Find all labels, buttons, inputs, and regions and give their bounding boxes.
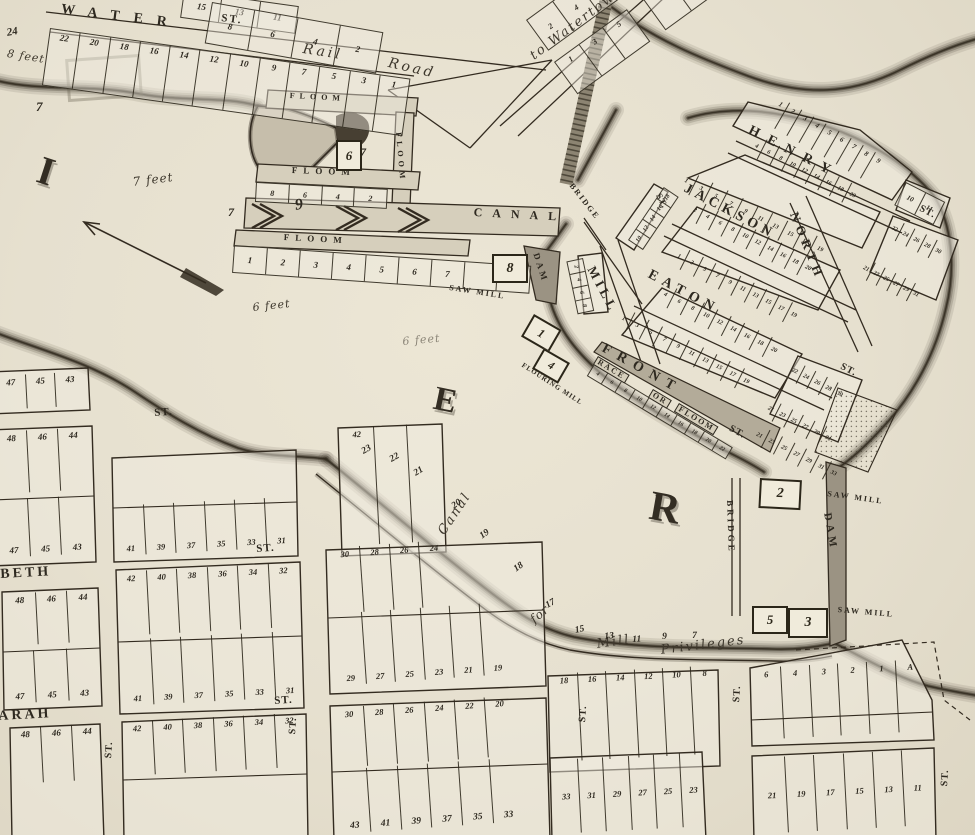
lot-number: 13: [872, 750, 905, 827]
lot-number: 42: [122, 720, 154, 775]
lot-number: 14: [605, 670, 638, 759]
lot-number: 37: [173, 501, 206, 553]
bridge-east: BRIDGE: [725, 500, 736, 554]
lot-number: 3: [298, 251, 333, 279]
lot-row-col4-2: 333129272523: [552, 752, 708, 834]
depth-6-feet-b: 6 feet: [402, 333, 441, 347]
lot-number: 43: [54, 371, 85, 407]
lot-number: 48: [0, 430, 29, 493]
lot-number: 28: [363, 704, 397, 766]
lot-number: 31: [576, 757, 605, 832]
lot-number: 39: [143, 503, 176, 555]
lot-number: 44: [71, 723, 105, 781]
lot-number: 1: [866, 661, 899, 734]
elizabeth-st: BETH: [0, 565, 52, 582]
lot-number: 8: [256, 183, 289, 203]
lot-number: 33: [489, 757, 524, 823]
lot-number: 43: [58, 495, 93, 555]
lot-number: 10: [662, 667, 695, 756]
lot-row-west-col-1: 474543: [0, 371, 86, 410]
lot-number: 41: [114, 504, 146, 555]
lot-number: 40: [151, 719, 184, 775]
lot-number: 11: [901, 749, 934, 826]
lot-number: 6: [247, 10, 297, 57]
canal-lot-11: 11: [632, 635, 641, 645]
lot-number: 41: [366, 766, 401, 832]
lot-number: 8: [206, 3, 255, 50]
lot-row-col5-1: 64321A: [752, 659, 928, 740]
lot-number: 37: [180, 635, 214, 703]
lot-number: 6: [288, 185, 322, 205]
lot-number: 44: [66, 589, 100, 643]
lot-number: 1: [233, 246, 267, 274]
lot-number: 30: [330, 546, 363, 614]
depth-7-a: 7: [36, 100, 43, 113]
lot-number: 26: [393, 702, 427, 764]
lot-number: 40: [145, 569, 179, 635]
lot-number: 33: [241, 632, 275, 700]
lot-number: 2: [353, 188, 387, 208]
lot-number: 44: [57, 427, 91, 491]
saw-mill-lot-5: 5: [752, 606, 788, 634]
lot-row-col2-4: 424038363432: [122, 712, 307, 775]
lot-number: 8: [690, 665, 723, 754]
lot-number: 43: [336, 768, 370, 834]
lot-number: 20: [483, 695, 517, 757]
lot-number: 47: [2, 650, 36, 704]
lot-row-col3-4: 302826242220: [334, 695, 518, 767]
lot-number: 47: [0, 374, 26, 409]
lot-number: 35: [458, 759, 493, 825]
lot-row-col3-5: 434139373533: [336, 757, 524, 834]
lot-number: 30: [334, 706, 367, 768]
lot-number: 34: [243, 714, 276, 770]
lot-number: 29: [602, 756, 631, 831]
lot-number: 25: [653, 753, 682, 828]
lot-number: 46: [35, 591, 69, 645]
lot-number: 36: [212, 716, 245, 772]
lot-number: 22: [453, 698, 487, 760]
canal-lot-7: 7: [692, 631, 697, 641]
lot-number: 12: [633, 668, 666, 757]
lot-number: 19: [784, 755, 817, 832]
lot-number: 46: [40, 725, 74, 783]
lot-number: 26: [388, 542, 422, 610]
lot-row-col3-1: 42: [340, 423, 446, 546]
lot-number: A: [895, 659, 928, 732]
lot-number: 36: [206, 566, 240, 632]
saw-mill-lot-3: 3: [788, 608, 828, 638]
floom-lot-6: 6: [336, 140, 362, 171]
lot-number: 1: [372, 75, 410, 135]
plat-map: WATERST.24RailRoadto WatertownFLOOMFLOOM…: [0, 0, 975, 835]
lot-row-west-col-5: 474543: [2, 647, 101, 704]
lot-number: 17: [813, 753, 846, 830]
lot-row-west-col-4: 484644: [4, 589, 101, 646]
lot-number: 47: [0, 498, 30, 558]
lot-number: 37: [427, 761, 462, 827]
canal-lot-15: 15: [574, 624, 585, 636]
lot-number: 23: [678, 752, 707, 827]
lot-number: 4: [320, 186, 354, 206]
st-west-1: ST.: [154, 407, 173, 419]
lot-number: 2: [837, 662, 870, 735]
lot-number: 4: [331, 253, 366, 281]
lot-number: 3: [809, 664, 842, 737]
lot-number: 4: [780, 665, 813, 738]
lot-number: 45: [27, 497, 62, 557]
lot-row-col5-2: 211917151311: [756, 749, 934, 834]
lot-number: 43: [66, 647, 101, 701]
lot-number: 31: [271, 630, 305, 698]
lot-number: 39: [397, 764, 432, 830]
lot-number: 8: [576, 297, 593, 313]
lot-number: 39: [149, 637, 183, 705]
lot-number: 35: [203, 500, 236, 552]
lot-number: 31: [264, 497, 297, 549]
lot-row-col2-2: 424038363432: [116, 562, 301, 635]
lot-number: 15: [842, 752, 875, 829]
lot-row-west-col-6: 484644: [10, 723, 105, 784]
saw-mill-lot-2: 2: [758, 478, 802, 510]
saw-mill-lot-8: 8: [492, 254, 528, 283]
lot-number: 6: [752, 667, 784, 740]
lot-number: 34: [237, 564, 271, 630]
lot-number: 2: [265, 248, 300, 276]
lot-number: 27: [627, 755, 656, 830]
lot-row-west-col-3: 474543: [0, 495, 93, 558]
lot-row-west-col-2: 484644: [0, 427, 91, 494]
lot-number: 32: [267, 562, 301, 628]
lot-row-col3-3: 292725232119: [332, 602, 513, 686]
lot-number: 28: [359, 544, 393, 612]
lot-number: 6: [397, 258, 432, 286]
st-west-2: ST.: [256, 543, 275, 555]
canal-lot-13: 13: [604, 631, 614, 642]
lot-number: 19: [478, 602, 512, 676]
lot-number: 45: [33, 649, 68, 703]
lot-number: 38: [182, 717, 215, 773]
st-west-3: ST.: [274, 695, 293, 707]
lot-row-col3-2: 30282624: [330, 540, 452, 614]
lot-number: 24: [418, 540, 452, 608]
st-vert-1: ST.: [104, 741, 115, 759]
st-vert-4: ST.: [732, 685, 743, 703]
canal-lot-9: 9: [662, 632, 667, 642]
sarah-st: ARAH: [0, 707, 52, 724]
lot-number: 38: [176, 567, 210, 633]
st-vert-5: ST.: [940, 769, 951, 787]
lot-number: 48: [10, 726, 43, 783]
st-vert-3: ST.: [578, 705, 589, 723]
lot-number: 5: [364, 255, 399, 283]
lot-number: 42: [116, 570, 149, 635]
lot-number: 21: [756, 757, 788, 834]
lot-number: 35: [210, 634, 244, 702]
depth-7-b: 7: [228, 206, 234, 218]
lot-number: 45: [25, 373, 56, 409]
st-vert-2: ST.: [288, 717, 299, 735]
lot-row-col4-1: 18161412108: [550, 665, 722, 762]
lot-number: 48: [4, 592, 37, 646]
lot-number: 46: [26, 429, 60, 493]
lot-24: 24: [6, 26, 19, 39]
lot-number: 24: [423, 700, 457, 762]
lot-number: 41: [120, 638, 153, 705]
